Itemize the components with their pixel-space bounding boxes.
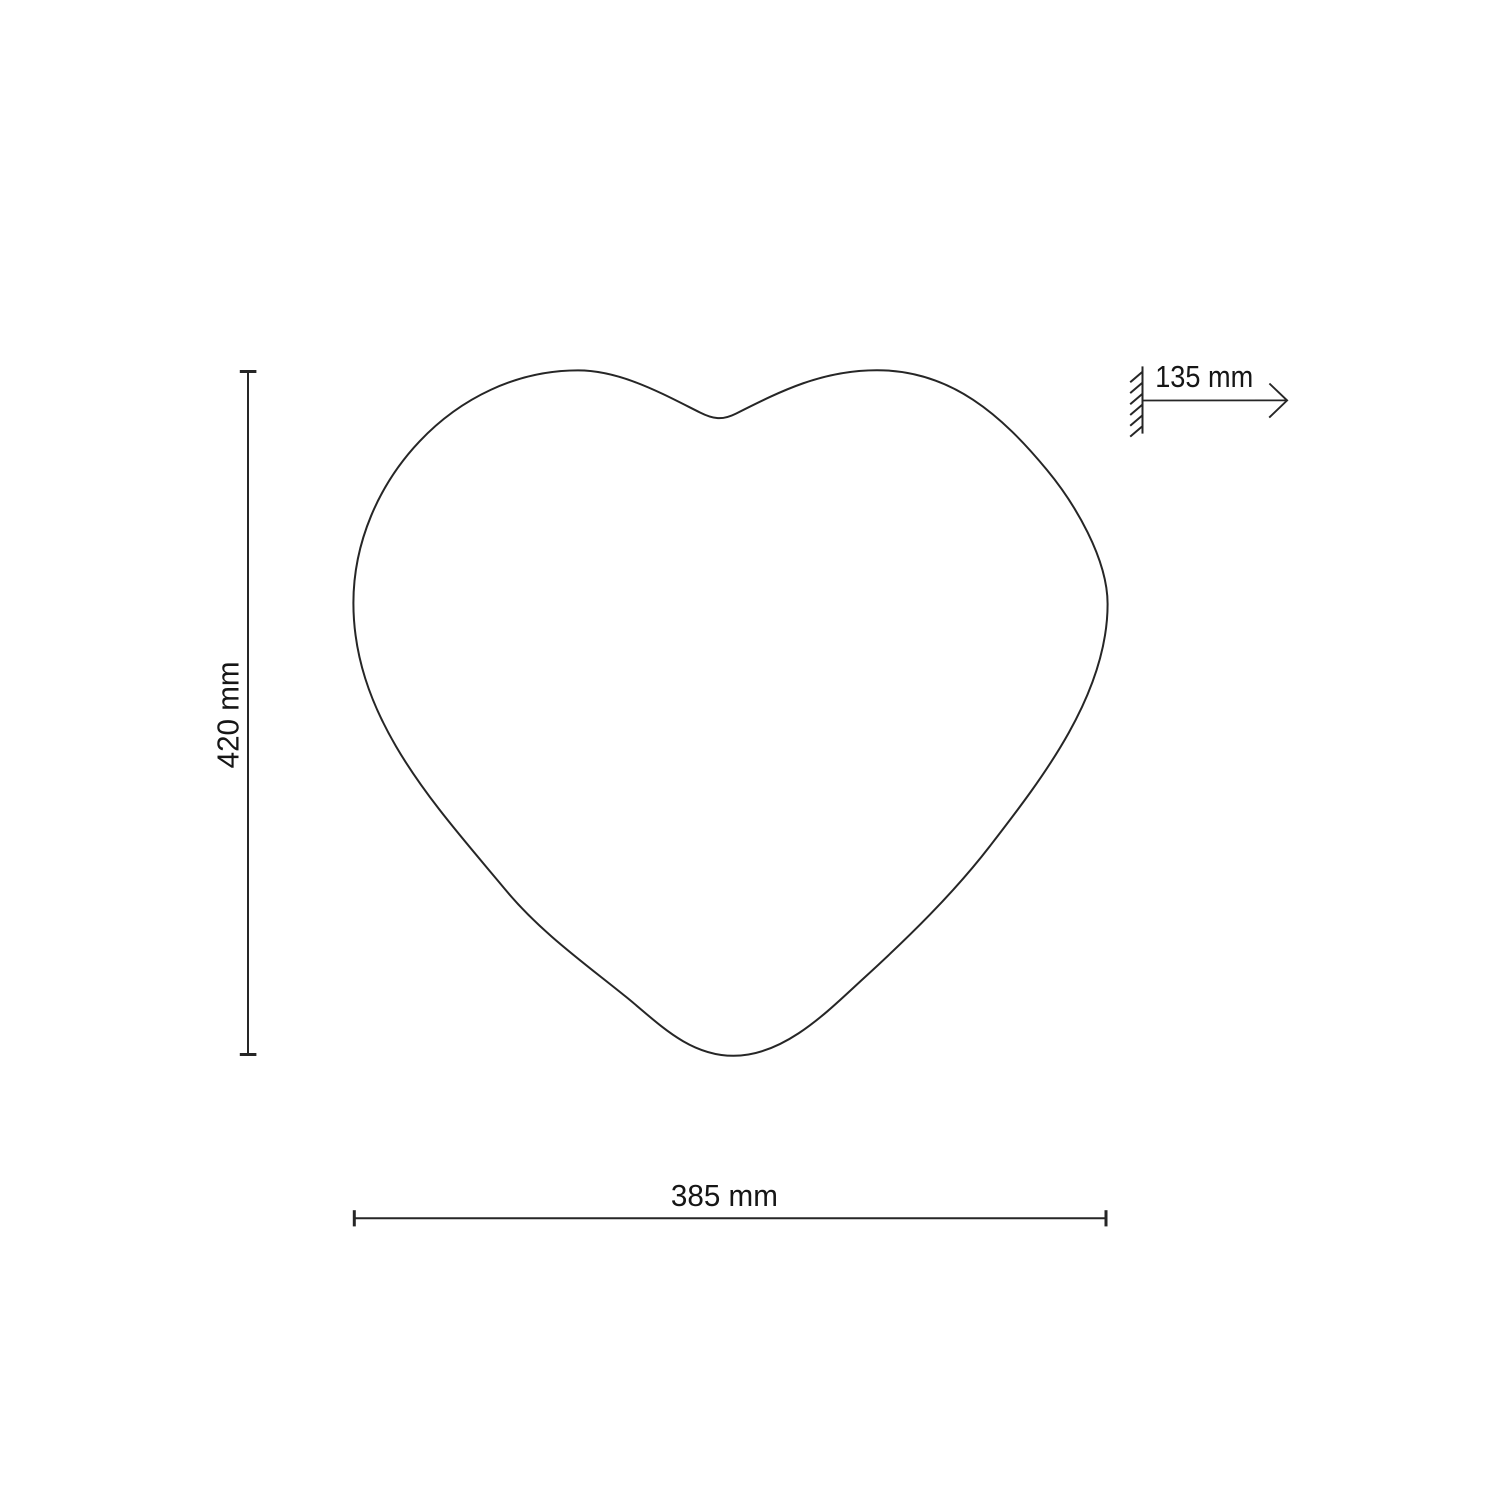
svg-text:135 mm: 135 mm bbox=[1155, 359, 1253, 394]
svg-text:385 mm: 385 mm bbox=[671, 1178, 778, 1213]
svg-text:420 mm: 420 mm bbox=[211, 661, 246, 768]
